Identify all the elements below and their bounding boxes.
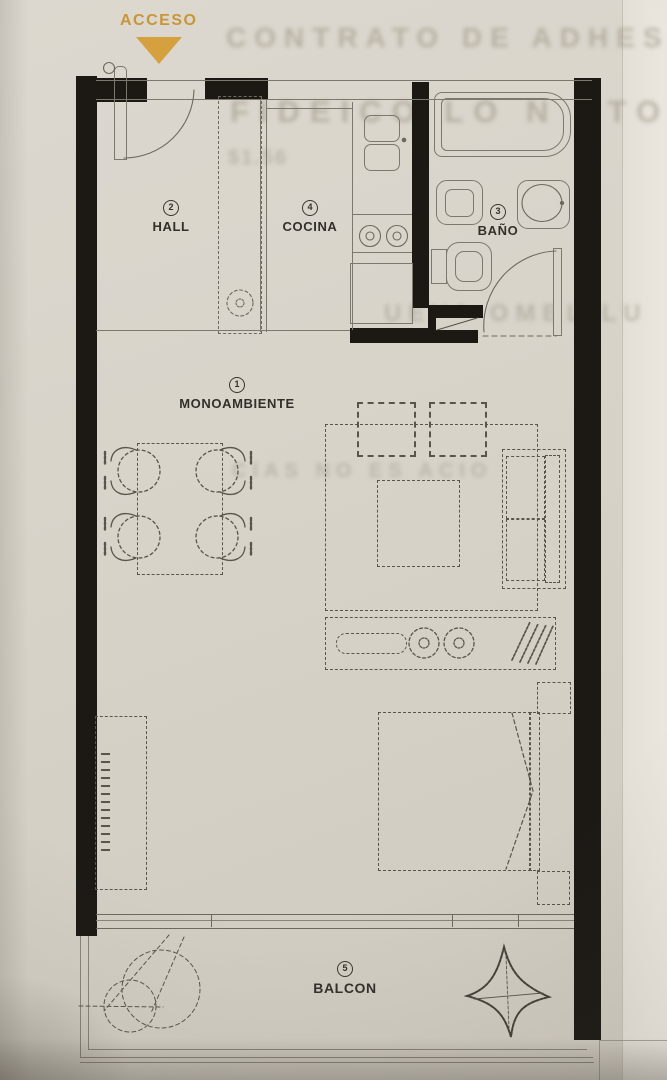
window-mid-line [96,920,574,921]
top-wall-outer-line [96,80,592,81]
hall-closet [218,96,262,334]
coffee-table [377,480,460,567]
window-mullion-3 [518,914,519,927]
console-tray [336,633,407,654]
room-number-hall: 2 [163,200,179,216]
kitchen-counter-top-line [267,108,353,109]
room-name-bano: BAÑO [456,223,540,238]
stove-divider-bottom [352,252,412,253]
stove-burner-1-inner [366,232,374,240]
room-label-cocina: 4 COCINA [268,197,352,234]
room-number-bano: 3 [490,204,506,220]
sink-faucet-dot [402,138,406,142]
room-name-cocina: COCINA [268,219,352,234]
entrance-door-hinge [104,63,115,74]
watermark-line-1: CONTRATO DE ADHES [226,22,667,54]
bath-wall-notch [436,318,483,330]
room-name-hall: HALL [131,219,211,234]
entrance-door-leaf [114,66,127,160]
room-label-balcon: 5 BALCON [303,958,387,996]
nightstand-bottom [537,871,570,905]
stove-burner-2-inner [393,232,401,240]
window-mullion-1 [211,914,212,927]
bathroom-door-leaf [553,248,562,336]
room-number-balcon: 5 [337,961,353,977]
toilet-bowl-inner [455,251,483,282]
room-label-monoambiente: 1 MONOAMBIENTE [175,374,299,411]
wall-bath-bottom-top-bar [428,305,483,318]
window-wall [96,914,574,929]
acceso-label: ACCESO [120,12,197,30]
wall-right [574,78,601,1040]
dining-table [137,443,223,575]
page-edge [622,0,667,1080]
wall-kitchen-bottom [350,328,428,343]
kitchen-sink-basin-2 [364,144,400,171]
toilet-tank [431,249,447,284]
room-name-monoambiente: MONOAMBIENTE [175,396,299,411]
refrigerator [350,263,413,324]
wall-bath-bottom-connector [428,305,436,343]
bathroom-door-swing-arc [484,251,556,332]
wardrobe-hanger-marks [101,753,110,851]
armchair-1 [357,402,416,457]
room-number-cocina: 4 [302,200,318,216]
kitchen-sink-basin-1 [364,115,400,142]
bathtub-inner [441,98,564,151]
nightstand-top [537,682,571,714]
room-label-bano: 3 BAÑO [456,201,540,238]
sofa-back [545,455,560,583]
room-number-monoambiente: 1 [229,377,245,393]
room-name-balcon: BALCON [303,980,387,996]
bed-headboard [529,712,540,871]
wall-kitchen-bath [412,82,429,308]
sofa-cushion-1 [506,456,545,519]
stove-burner-1 [360,226,381,247]
stove-burner-2 [387,226,408,247]
armchair-2 [429,402,487,457]
acceso-arrow-icon [136,37,182,64]
stove-divider-top [352,214,412,215]
page-fold-line-horizontal [600,1040,667,1041]
room-label-hall: 2 HALL [131,197,211,234]
bed [378,712,531,871]
floorplan-photo: CONTRATO DE ADHES FIDEICO LO N ETO $1.56… [0,0,667,1080]
sofa-cushion-2 [506,519,545,581]
page-fold-line-vertical [599,1040,600,1080]
window-mullion-2 [452,914,453,927]
wall-left [76,76,97,936]
balcony-edge-line [80,1062,594,1063]
